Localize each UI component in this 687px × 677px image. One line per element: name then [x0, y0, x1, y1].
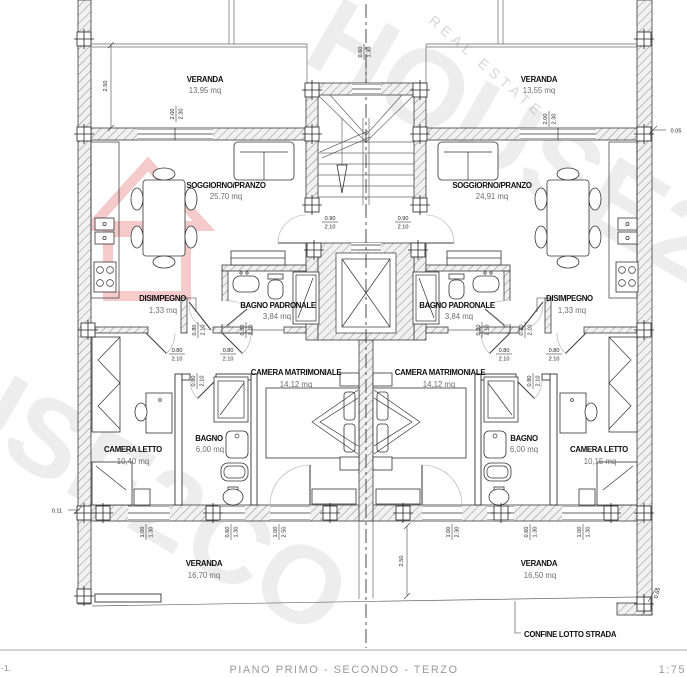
svg-text:2.10: 2.10: [549, 357, 560, 363]
svg-text:2.10: 2.10: [528, 325, 534, 336]
sheet-corner-note: -1.: [1, 663, 11, 673]
svg-text:2.10: 2.10: [223, 357, 234, 363]
svg-text:CAMERA MATRIMONIALE: CAMERA MATRIMONIALE: [395, 368, 486, 377]
dim-entry-door-left: 0.902.10: [322, 216, 338, 231]
room-label-bagno-right: BAGNO 6,00 mq: [510, 434, 538, 454]
svg-text:0.11: 0.11: [52, 509, 62, 515]
title-block: PIANO PRIMO - SECONDO - TERZO 1:75 -1.: [0, 650, 687, 676]
svg-text:2.10: 2.10: [536, 376, 542, 387]
svg-text:3,84 mq: 3,84 mq: [445, 312, 473, 321]
svg-text:1.00: 1.00: [577, 527, 583, 538]
svg-text:0.80: 0.80: [476, 325, 482, 336]
boundary-callout: CONFINE LOTTO STRADA: [515, 601, 617, 639]
dresser-left: [312, 489, 356, 504]
floor-plan-sheet: HOUSE2CO HOUSE2CO REAL ESTATE: [0, 0, 687, 677]
svg-text:BAGNO PADRONALE: BAGNO PADRONALE: [240, 301, 316, 310]
floor-plan-drawing: HOUSE2CO HOUSE2CO REAL ESTATE: [0, 0, 687, 677]
svg-text:2.10: 2.10: [200, 376, 206, 387]
svg-text:2.50: 2.50: [282, 527, 288, 538]
room-label-camera-matrimoniale-left: CAMERA MATRIMONIALE 14,12 mq: [251, 368, 342, 389]
dim-disimpegno-door-right: 0.802.10: [519, 322, 534, 338]
dim-veranda-door-right: 1.002.30: [446, 524, 461, 540]
svg-text:13,95 mq: 13,95 mq: [189, 86, 222, 95]
dim-bagno-door-left: 0.802.10: [191, 373, 206, 389]
window-stairwell: [352, 83, 381, 95]
svg-text:1.30: 1.30: [586, 527, 592, 538]
svg-text:14,12 mq: 14,12 mq: [423, 380, 456, 389]
room-label-camera-matrimoniale-right: CAMERA MATRIMONIALE 14,12 mq: [395, 368, 486, 389]
svg-text:2.00: 2.00: [170, 109, 176, 120]
entry-door-left: [278, 215, 306, 243]
svg-text:10,40 mq: 10,40 mq: [117, 457, 150, 466]
sofa-right: [438, 142, 498, 180]
room-label-veranda-top-left: VERANDA 13,95 mq: [187, 75, 224, 95]
sheet-title: PIANO PRIMO - SECONDO - TERZO: [229, 664, 458, 676]
camera-letto-furniture-right: [560, 337, 637, 505]
svg-text:VERANDA: VERANDA: [521, 75, 558, 84]
dim-veranda-top-left: 2.50: [103, 81, 109, 92]
dim-camera-matrimoniale-door-right: 0.802.10: [496, 348, 512, 363]
camera-letto-door-right: [557, 333, 586, 354]
svg-text:1.00: 1.00: [446, 527, 452, 538]
svg-text:2.10: 2.10: [201, 325, 207, 336]
dim-window-top-left: 2.002.30: [170, 106, 185, 122]
svg-text:SOGGIORNO/PRANZO: SOGGIORNO/PRANZO: [186, 181, 265, 190]
svg-text:2.10: 2.10: [325, 225, 336, 231]
svg-text:1.00: 1.00: [273, 527, 279, 538]
svg-text:1.30: 1.30: [149, 527, 155, 538]
svg-text:BAGNO: BAGNO: [510, 434, 538, 443]
dim-offset-bottom-right: 0.65: [654, 587, 663, 599]
sofa-left: [234, 142, 294, 180]
svg-text:2.30: 2.30: [455, 527, 461, 538]
dim-camera-letto-door-left: 0.802.10: [169, 348, 185, 363]
svg-text:3,84 mq: 3,84 mq: [263, 312, 291, 321]
svg-text:0.80: 0.80: [499, 348, 510, 354]
svg-text:CAMERA MATRIMONIALE: CAMERA MATRIMONIALE: [251, 368, 342, 377]
svg-text:BAGNO: BAGNO: [195, 434, 223, 443]
svg-text:BAGNO PADRONALE: BAGNO PADRONALE: [419, 301, 495, 310]
room-label-bagno-left: BAGNO 6,00 mq: [195, 434, 224, 454]
window-top-left: [137, 128, 213, 140]
svg-text:1,33 mq: 1,33 mq: [558, 306, 586, 315]
stair-direction-arrow-icon: [337, 118, 347, 193]
svg-text:6,00 mq: 6,00 mq: [510, 445, 538, 454]
svg-text:0.65: 0.65: [654, 587, 663, 599]
svg-text:2.50: 2.50: [103, 81, 109, 92]
svg-text:0.05: 0.05: [671, 129, 682, 135]
svg-text:SOGGIORNO/PRANZO: SOGGIORNO/PRANZO: [452, 181, 531, 190]
svg-text:10,15 mq: 10,15 mq: [584, 457, 617, 466]
svg-text:1.30: 1.30: [367, 47, 373, 58]
svg-text:0.80: 0.80: [519, 325, 525, 336]
svg-text:CAMERA LETTO: CAMERA LETTO: [570, 445, 628, 454]
svg-text:0.80: 0.80: [172, 348, 183, 354]
svg-text:6,00 mq: 6,00 mq: [196, 445, 224, 454]
dim-offset-right: 0.05: [649, 126, 681, 135]
svg-text:0.60: 0.60: [524, 527, 530, 538]
svg-text:13,55 mq: 13,55 mq: [523, 86, 556, 95]
svg-text:1.00: 1.00: [140, 527, 146, 538]
dim-window-camera-letto-right: 1.001.30: [577, 524, 592, 540]
svg-text:2.30: 2.30: [552, 114, 558, 125]
svg-text:0.80: 0.80: [549, 348, 560, 354]
svg-text:VERANDA: VERANDA: [187, 75, 224, 84]
svg-text:DISIMPEGNO: DISIMPEGNO: [546, 294, 593, 303]
svg-text:CONFINE LOTTO STRADA: CONFINE LOTTO STRADA: [524, 630, 617, 639]
dresser-right: [376, 489, 420, 504]
svg-text:25.70 mq: 25.70 mq: [210, 192, 243, 201]
kitchen-counter-left: [91, 142, 119, 298]
svg-text:0.80: 0.80: [192, 325, 198, 336]
svg-text:2.50: 2.50: [399, 556, 405, 567]
svg-text:CAMERA LETTO: CAMERA LETTO: [104, 445, 162, 454]
svg-text:24,91 mq: 24,91 mq: [476, 192, 509, 201]
dim-entry-door-right: 0.902.10: [395, 216, 411, 231]
svg-text:1.30: 1.30: [533, 527, 539, 538]
sheet-scale: 1:75: [659, 664, 686, 676]
dim-bagno-door-right: 0.802.10: [527, 373, 542, 389]
svg-text:14,12 mq: 14,12 mq: [280, 380, 313, 389]
svg-text:2.10: 2.10: [249, 325, 255, 336]
svg-text:0.60: 0.60: [225, 527, 231, 538]
svg-text:0.90: 0.90: [325, 216, 336, 222]
dim-disimpegno-door-left: 0.802.10: [192, 322, 207, 338]
svg-text:0.80: 0.80: [223, 348, 234, 354]
svg-text:0.90: 0.90: [398, 216, 409, 222]
dim-veranda-bottom-right: 2.50: [399, 556, 405, 567]
room-label-soggiorno-left: SOGGIORNO/PRANZO 25.70 mq: [186, 181, 265, 201]
window-top-right: [520, 128, 596, 140]
svg-text:16,50 mq: 16,50 mq: [524, 571, 557, 580]
svg-text:1,33 mq: 1,33 mq: [149, 306, 177, 315]
svg-text:2.10: 2.10: [172, 357, 183, 363]
svg-text:2.10: 2.10: [485, 325, 491, 336]
svg-text:16,70 mq: 16,70 mq: [188, 571, 221, 580]
svg-text:DISIMPEGNO: DISIMPEGNO: [139, 294, 186, 303]
svg-text:VERANDA: VERANDA: [186, 559, 223, 568]
entry-door-right: [426, 215, 454, 243]
svg-text:0.80: 0.80: [191, 376, 197, 387]
svg-text:1.30: 1.30: [234, 527, 240, 538]
svg-text:0.80: 0.80: [527, 376, 533, 387]
svg-text:VERANDA: VERANDA: [521, 559, 558, 568]
dim-camera-letto-door-right: 0.802.10: [546, 348, 562, 363]
svg-text:0.80: 0.80: [240, 325, 246, 336]
room-label-veranda-bottom-right: VERANDA 16,50 mq: [521, 559, 558, 580]
veranda-door-right: [422, 465, 462, 505]
svg-text:2.10: 2.10: [398, 225, 409, 231]
svg-text:2.10: 2.10: [499, 357, 510, 363]
dim-camera-matrimoniale-door-left: 0.802.10: [220, 348, 236, 363]
svg-text:0.60: 0.60: [358, 47, 364, 58]
dim-window-bagno-right: 0.601.30: [524, 524, 539, 540]
svg-text:2.30: 2.30: [179, 109, 185, 120]
svg-text:2.00: 2.00: [543, 114, 549, 125]
